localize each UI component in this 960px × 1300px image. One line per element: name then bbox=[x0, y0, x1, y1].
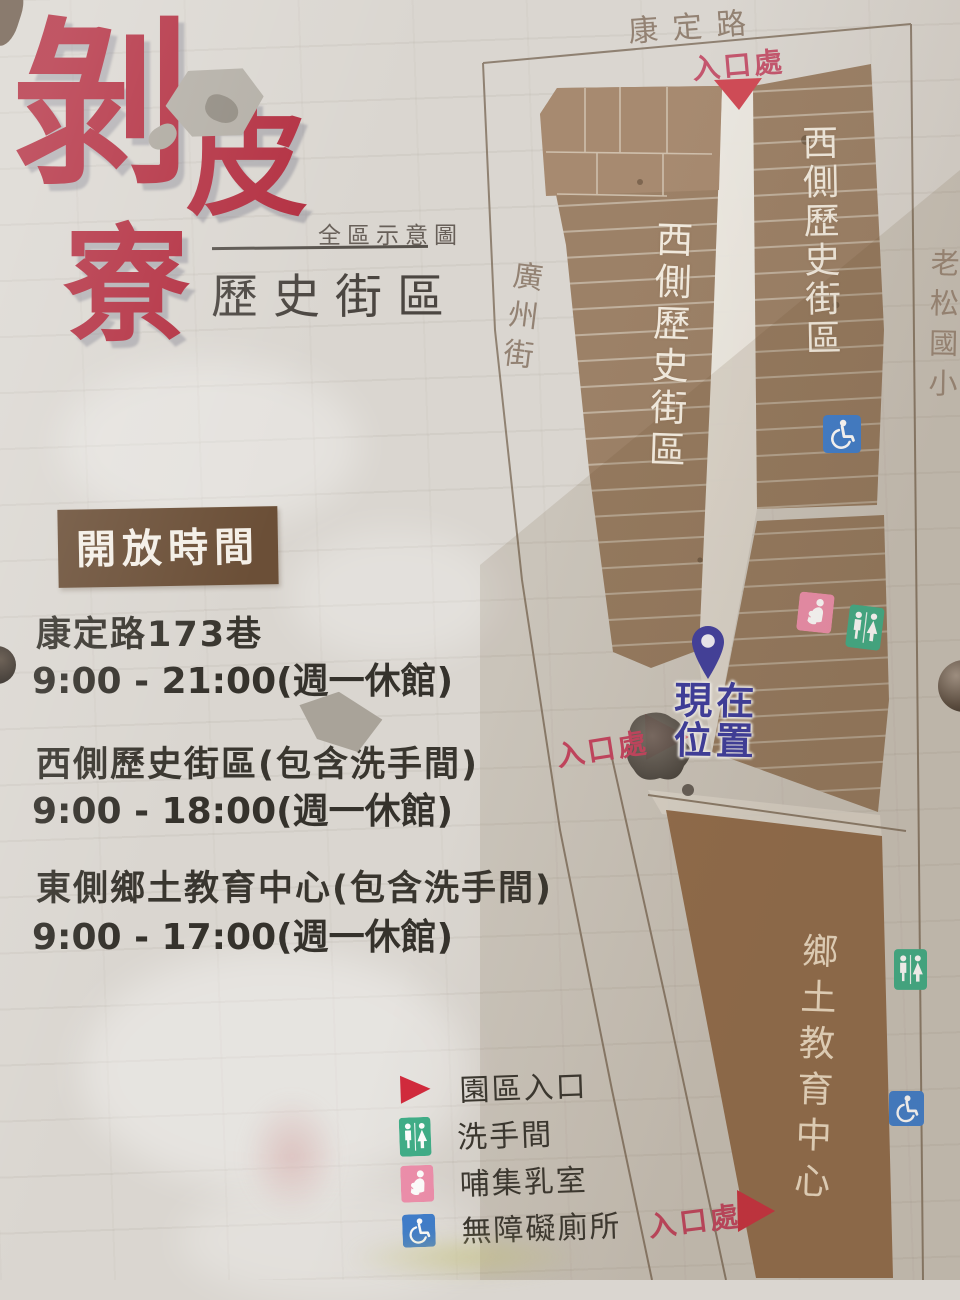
current-location-line2: 位置 bbox=[673, 721, 758, 762]
restroom-icon bbox=[894, 949, 927, 990]
damage-speck bbox=[682, 784, 694, 796]
accessible-toilet-icon bbox=[823, 415, 861, 453]
accessible-toilet-icon bbox=[889, 1091, 924, 1126]
logo-char-bo: 剝 bbox=[12, 16, 190, 194]
hours-entry-name: 東側鄉土教育中心(包含洗手間) bbox=[36, 860, 553, 911]
hours-entry-time: 9:00 - 21:00(週一休館) bbox=[32, 652, 453, 704]
hours-entry-time: 9:00 - 17:00(週一休館) bbox=[32, 908, 453, 960]
area-label-local-education-center: 鄉土教育中心 bbox=[781, 931, 843, 1209]
hours-entry-name: 西側歷史街區(包含洗手間) bbox=[36, 736, 479, 787]
legend-item-entrance: 園區入口 bbox=[397, 1062, 617, 1110]
area-label-west-historic-block-right: 西側歷史街區 bbox=[790, 124, 846, 359]
legend-label-entrance: 園區入口 bbox=[459, 1061, 588, 1109]
entrance-triangle-icon bbox=[397, 1073, 434, 1106]
logo-char-liao: 寮 bbox=[64, 222, 190, 348]
entrance-label-top: 入口處 bbox=[690, 40, 786, 88]
legend-label-restroom: 洗手間 bbox=[456, 1109, 553, 1156]
hours-entry-time: 9:00 - 18:00(週一休館) bbox=[32, 782, 453, 834]
map-legend: 園區入口 洗手間 哺集乳室 無障礙廁所 bbox=[397, 1062, 622, 1258]
area-label-west-historic-block-left: 西側歷史街區 bbox=[636, 219, 699, 473]
current-location-line1: 現在 bbox=[674, 681, 759, 722]
hours-entry-name: 康定路173巷 bbox=[36, 606, 263, 657]
nursing-room-icon bbox=[796, 591, 835, 633]
logo-subtitle-historic-block: 歷史街區 bbox=[211, 258, 459, 327]
restroom-icon bbox=[398, 1116, 431, 1156]
legend-item-restroom: 洗手間 bbox=[398, 1109, 618, 1157]
west-block-left-top bbox=[540, 86, 722, 196]
restroom-icon bbox=[845, 604, 885, 651]
legend-item-nursing-room: 哺集乳室 bbox=[400, 1156, 620, 1204]
legend-label-nursing-room: 哺集乳室 bbox=[459, 1155, 588, 1203]
landmark-label-laosong-elementary: 老松國小 bbox=[920, 248, 960, 409]
stain-smear bbox=[348, 1234, 583, 1280]
nursing-room-icon bbox=[400, 1164, 434, 1202]
current-location-label: 現在 位置 bbox=[673, 681, 758, 762]
stain-smear bbox=[244, 1096, 340, 1216]
opening-hours-header: 開放時間 bbox=[57, 506, 278, 588]
